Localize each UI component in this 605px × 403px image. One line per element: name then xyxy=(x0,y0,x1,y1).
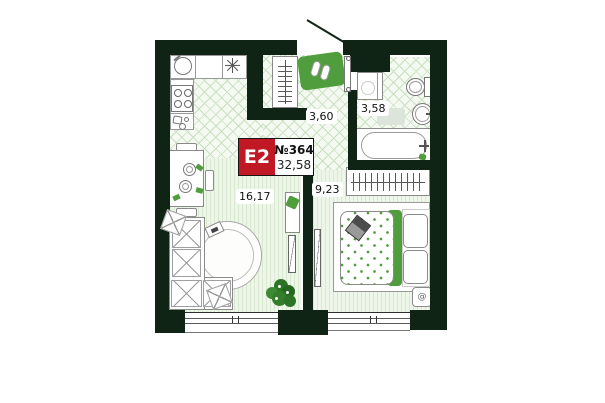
dining-table xyxy=(168,150,204,207)
dining-chair xyxy=(205,170,214,191)
burner xyxy=(184,89,192,97)
spiral-icon: @ xyxy=(418,292,427,302)
sofa-cushion xyxy=(171,280,202,307)
wall-bottom-right-corner xyxy=(410,310,432,330)
wall-bottom-left-corner xyxy=(155,310,185,333)
tv-living xyxy=(288,235,296,273)
burner xyxy=(184,100,192,108)
bed-pillow xyxy=(403,214,428,248)
plate-inner xyxy=(186,166,193,173)
unit-total-area: 32,58 xyxy=(277,158,311,172)
small-dish xyxy=(184,117,189,122)
wall-bathroom-top-block xyxy=(350,55,390,72)
bed-pillow xyxy=(403,250,428,284)
door-hinge xyxy=(346,87,351,92)
fridge-asterisk-icon xyxy=(224,58,239,73)
wall-bathroom-bottom xyxy=(348,160,433,170)
burner xyxy=(174,100,182,108)
area-label-bathroom: 3,58 xyxy=(358,101,389,116)
wall-partition-living-bedroom xyxy=(303,157,313,313)
plate-inner xyxy=(182,183,189,190)
unit-type-badge: E2 xyxy=(239,139,275,175)
napkin xyxy=(195,163,204,171)
tub-faucet xyxy=(419,145,429,147)
unit-number: №364 xyxy=(274,143,314,158)
wall-right xyxy=(430,40,447,330)
bathtub xyxy=(356,128,432,163)
wall-bottom-center-pier xyxy=(278,310,328,335)
corner-table: @ xyxy=(412,287,432,307)
area-label-living: 16,17 xyxy=(236,189,274,204)
plant xyxy=(266,277,299,309)
stove xyxy=(171,85,193,112)
window-living xyxy=(185,312,278,333)
tv-bedroom xyxy=(314,229,321,287)
floor-plan-canvas: @ E2 №364 32,58 3,60 3,58 16,17 9,23 xyxy=(0,0,605,403)
entrance-door-leaf xyxy=(306,19,345,43)
washing-machine xyxy=(357,72,383,100)
shoe xyxy=(319,64,331,82)
remote xyxy=(211,227,219,234)
window-bedroom xyxy=(328,312,410,331)
unit-info: №364 32,58 xyxy=(275,139,313,175)
area-label-hallway: 3,60 xyxy=(306,109,337,124)
counter-divider xyxy=(222,56,223,78)
burner xyxy=(174,89,182,97)
wall-kitchen-horizontal xyxy=(247,108,307,120)
area-label-bedroom: 9,23 xyxy=(312,182,343,197)
kitchen-sink xyxy=(174,57,192,75)
wall-left xyxy=(155,40,170,333)
bathtub-inner xyxy=(361,132,427,159)
window-mullion xyxy=(232,316,239,323)
window-mullion xyxy=(370,316,377,323)
drain-icon xyxy=(179,123,186,130)
napkin xyxy=(195,187,203,194)
wall-bathroom-left xyxy=(348,90,357,170)
toilet-bowl-inner xyxy=(409,81,422,93)
napkin xyxy=(172,194,180,201)
shoe-rug xyxy=(297,51,346,91)
bathroom-door-leaf xyxy=(344,56,351,92)
unit-label: E2 №364 32,58 xyxy=(238,138,314,176)
door-hinge xyxy=(346,56,351,61)
bedroom-wardrobe xyxy=(346,167,430,196)
counter-divider xyxy=(195,56,196,78)
wardrobe-hangers xyxy=(353,173,423,191)
kitchen-small-unit xyxy=(171,113,193,131)
wall-kitchen-vertical xyxy=(247,55,263,108)
washer-drum xyxy=(361,81,375,95)
hall-wardrobe xyxy=(272,56,298,108)
wardrobe-hangers xyxy=(278,62,292,102)
wall-top-left xyxy=(155,40,297,55)
sofa-cushion xyxy=(172,249,201,277)
